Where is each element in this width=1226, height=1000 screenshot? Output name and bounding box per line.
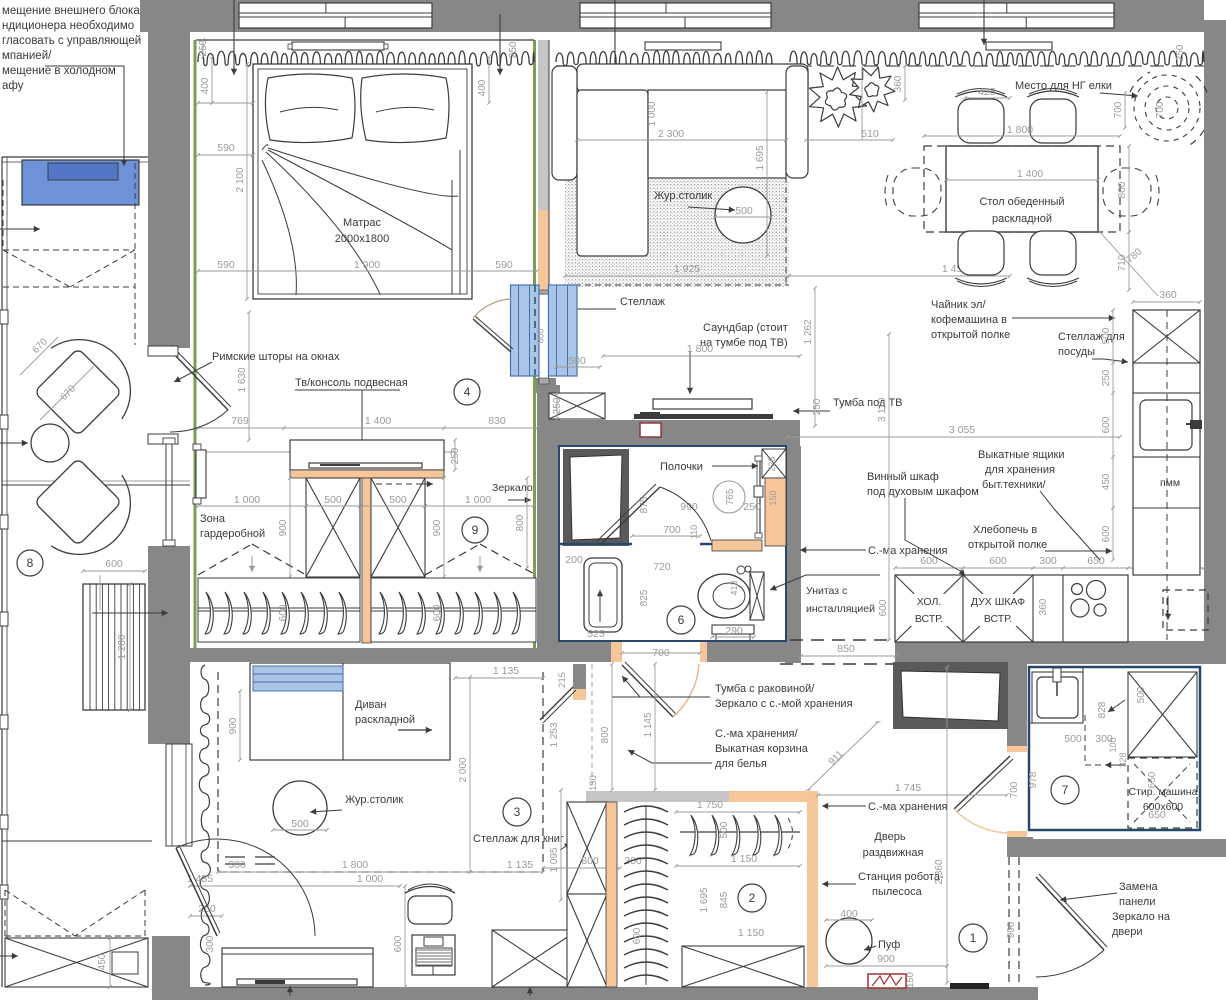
svg-text:Матрас: Матрас <box>343 217 381 229</box>
svg-text:235: 235 <box>767 456 777 471</box>
svg-text:1 745: 1 745 <box>895 782 921 794</box>
svg-text:130: 130 <box>588 775 599 791</box>
svg-text:290: 290 <box>725 625 743 637</box>
svg-text:590: 590 <box>217 259 235 271</box>
svg-text:500: 500 <box>291 818 309 830</box>
svg-text:ХОЛ.: ХОЛ. <box>917 596 942 608</box>
svg-text:Хлебопечь в: Хлебопечь в <box>973 524 1037 536</box>
svg-text:250: 250 <box>508 41 519 58</box>
svg-text:Замена: Замена <box>1119 881 1159 893</box>
svg-text:афу: афу <box>2 80 24 92</box>
svg-text:500: 500 <box>719 821 730 838</box>
svg-text:3: 3 <box>514 805 521 819</box>
svg-text:Пуф: Пуф <box>878 939 900 951</box>
svg-text:1 150: 1 150 <box>738 927 764 939</box>
svg-text:590: 590 <box>217 142 235 154</box>
svg-text:1 000: 1 000 <box>647 101 658 126</box>
svg-text:открытой полке: открытой полке <box>968 539 1047 551</box>
svg-text:1 695: 1 695 <box>755 145 766 170</box>
svg-text:360: 360 <box>1159 289 1177 301</box>
svg-text:ВСТР.: ВСТР. <box>915 613 943 625</box>
svg-text:мпанией/: мпанией/ <box>2 50 52 62</box>
svg-text:на тумбе под ТВ): на тумбе под ТВ) <box>700 337 788 349</box>
svg-text:1 145: 1 145 <box>643 712 654 737</box>
svg-text:600: 600 <box>432 604 443 621</box>
svg-text:раскладной: раскладной <box>992 213 1052 225</box>
svg-text:900: 900 <box>278 519 289 536</box>
svg-text:800: 800 <box>536 328 546 343</box>
svg-text:Диван: Диван <box>355 699 387 711</box>
svg-text:600: 600 <box>393 935 404 952</box>
svg-text:Стеллаж для: Стеллаж для <box>1058 331 1125 343</box>
svg-text:быт.техники/: быт.техники/ <box>982 479 1047 491</box>
svg-text:413: 413 <box>729 580 739 595</box>
svg-text:1 750: 1 750 <box>697 799 723 811</box>
svg-text:1 800: 1 800 <box>342 859 368 871</box>
svg-text:650: 650 <box>1147 771 1158 788</box>
svg-text:250: 250 <box>198 39 209 56</box>
svg-text:2 300: 2 300 <box>658 128 684 140</box>
svg-text:200: 200 <box>565 554 583 566</box>
svg-text:425: 425 <box>978 86 996 98</box>
svg-text:2 000: 2 000 <box>458 757 469 782</box>
svg-text:С.-ма хранения: С.-ма хранения <box>868 801 948 813</box>
svg-text:раскладной: раскладной <box>355 714 415 726</box>
svg-text:500: 500 <box>1101 327 1112 344</box>
svg-text:360: 360 <box>1038 598 1049 615</box>
svg-text:1 135: 1 135 <box>493 665 519 677</box>
svg-text:720: 720 <box>653 561 671 573</box>
svg-text:250: 250 <box>743 501 761 513</box>
svg-text:Стеллаж: Стеллаж <box>620 296 666 308</box>
svg-text:раздвижная: раздвижная <box>863 847 924 859</box>
svg-text:1 200: 1 200 <box>117 634 128 659</box>
svg-text:1 695: 1 695 <box>699 887 710 912</box>
svg-text:1 135: 1 135 <box>507 859 533 871</box>
svg-text:панели: панели <box>1119 896 1155 908</box>
svg-text:2000х1800: 2000х1800 <box>335 233 389 245</box>
svg-text:800: 800 <box>515 514 526 531</box>
svg-text:1 925: 1 925 <box>674 263 700 275</box>
svg-text:900: 900 <box>877 953 895 965</box>
svg-text:700: 700 <box>1113 101 1124 118</box>
svg-text:650: 650 <box>1148 809 1166 821</box>
svg-text:Зеркало на: Зеркало на <box>1112 911 1171 923</box>
svg-text:978: 978 <box>1028 771 1039 788</box>
svg-text:600: 600 <box>989 555 1007 567</box>
svg-text:650: 650 <box>1087 555 1105 567</box>
svg-text:590: 590 <box>495 259 513 271</box>
svg-text:400: 400 <box>200 77 211 94</box>
svg-text:250: 250 <box>1175 44 1186 61</box>
svg-text:500: 500 <box>1064 733 1082 745</box>
svg-text:Римские шторы на окнах: Римские шторы на окнах <box>212 351 340 363</box>
svg-text:для хранения: для хранения <box>985 464 1055 476</box>
svg-text:Дверь: Дверь <box>874 831 905 843</box>
svg-text:6: 6 <box>678 613 685 627</box>
svg-text:800: 800 <box>600 726 611 743</box>
svg-text:500: 500 <box>324 494 342 506</box>
svg-text:300: 300 <box>1039 555 1057 567</box>
svg-text:открытой полке: открытой полке <box>931 329 1010 341</box>
svg-text:Саундбар (стоит: Саундбар (стоит <box>703 322 788 334</box>
svg-text:гардеробной: гардеробной <box>200 528 265 540</box>
svg-text:1: 1 <box>970 931 977 945</box>
svg-text:250: 250 <box>1101 369 1112 386</box>
svg-text:1 800: 1 800 <box>687 343 713 355</box>
svg-text:Унитаз с: Унитаз с <box>806 585 847 597</box>
svg-text:215: 215 <box>557 672 568 688</box>
svg-text:600: 600 <box>1101 525 1112 542</box>
svg-text:1 253: 1 253 <box>549 722 560 747</box>
svg-text:600: 600 <box>878 599 889 616</box>
svg-text:Выкатная корзина: Выкатная корзина <box>715 743 809 755</box>
svg-text:ндиционера необходимо: ндиционера необходимо <box>2 20 134 32</box>
svg-text:Тумба под ТВ: Тумба под ТВ <box>833 397 903 409</box>
svg-text:мещение внешнего блока: мещение внешнего блока <box>2 5 140 17</box>
svg-text:300: 300 <box>205 935 216 952</box>
svg-text:900: 900 <box>432 519 443 536</box>
svg-text:769: 769 <box>231 415 249 427</box>
svg-text:900: 900 <box>228 717 239 734</box>
svg-text:1 800: 1 800 <box>1007 124 1033 136</box>
svg-text:Стол обеденный: Стол обеденный <box>979 196 1064 208</box>
svg-text:1 150: 1 150 <box>731 853 757 865</box>
svg-text:600: 600 <box>1101 416 1112 433</box>
svg-text:990: 990 <box>1006 921 1017 938</box>
svg-text:Выкатные ящики: Выкатные ящики <box>978 449 1064 461</box>
svg-text:600: 600 <box>105 558 123 570</box>
svg-text:500: 500 <box>1136 686 1147 703</box>
svg-text:мещение в холодном: мещение в холодном <box>2 65 116 77</box>
svg-text:Тумба с раковиной/: Тумба с раковиной/ <box>715 683 815 695</box>
svg-text:765: 765 <box>725 488 736 505</box>
svg-text:Зона: Зона <box>200 513 226 525</box>
svg-text:4: 4 <box>464 385 471 399</box>
svg-text:150: 150 <box>768 490 778 505</box>
svg-text:Чайник эл/: Чайник эл/ <box>931 299 986 311</box>
svg-text:Полочки: Полочки <box>660 461 703 473</box>
svg-text:510: 510 <box>861 128 879 140</box>
svg-text:525: 525 <box>587 628 605 640</box>
svg-text:850: 850 <box>837 643 855 655</box>
svg-text:3 055: 3 055 <box>949 424 975 436</box>
svg-text:500: 500 <box>735 205 753 217</box>
svg-text:посуды: посуды <box>1058 346 1095 358</box>
svg-text:1 000: 1 000 <box>357 873 383 885</box>
svg-text:825: 825 <box>639 589 650 606</box>
svg-text:1 095: 1 095 <box>549 847 560 872</box>
svg-text:2: 2 <box>749 891 756 905</box>
svg-text:1 630: 1 630 <box>237 367 248 392</box>
svg-text:700: 700 <box>1009 781 1020 798</box>
svg-text:гласовать с управляющей: гласовать с управляющей <box>2 35 141 47</box>
svg-text:7: 7 <box>1062 783 1069 797</box>
svg-text:360: 360 <box>893 75 904 92</box>
svg-text:1 000: 1 000 <box>465 494 491 506</box>
svg-text:пылесоса: пылесоса <box>872 886 923 898</box>
svg-text:500: 500 <box>568 355 586 367</box>
svg-text:845: 845 <box>719 891 730 908</box>
svg-text:3 110: 3 110 <box>877 397 888 422</box>
svg-text:Место для НГ елки: Место для НГ елки <box>1015 80 1112 92</box>
svg-text:400: 400 <box>477 79 488 96</box>
svg-text:800: 800 <box>581 855 599 867</box>
svg-text:ВСТР.: ВСТР. <box>984 613 1012 625</box>
svg-text:9: 9 <box>472 523 479 537</box>
svg-text:2 100: 2 100 <box>235 167 246 192</box>
svg-text:Жур.столик: Жур.столик <box>654 190 712 202</box>
svg-text:300: 300 <box>1095 733 1113 745</box>
svg-text:250: 250 <box>812 398 823 415</box>
svg-text:1 900: 1 900 <box>354 259 380 271</box>
svg-text:250: 250 <box>552 397 563 414</box>
svg-text:двери: двери <box>1112 926 1143 938</box>
svg-text:С.-ма хранения/: С.-ма хранения/ <box>715 728 799 740</box>
svg-text:для белья: для белья <box>715 758 767 770</box>
svg-text:500: 500 <box>389 494 407 506</box>
svg-text:Жур.столик: Жур.столик <box>345 794 403 806</box>
svg-text:800: 800 <box>1117 181 1128 198</box>
svg-text:1 000: 1 000 <box>234 494 260 506</box>
svg-text:Станция робота-: Станция робота- <box>858 871 944 883</box>
svg-text:450: 450 <box>1101 473 1112 490</box>
svg-text:250: 250 <box>450 447 461 464</box>
svg-text:Стеллаж для книг: Стеллаж для книг <box>473 833 564 845</box>
svg-text:1 262: 1 262 <box>803 319 814 344</box>
svg-text:1 400: 1 400 <box>365 415 391 427</box>
svg-text:под духовым шкафом: под духовым шкафом <box>867 486 979 498</box>
svg-text:инсталляцией: инсталляцией <box>806 603 875 615</box>
svg-text:300: 300 <box>624 855 642 867</box>
svg-text:1 400: 1 400 <box>1017 168 1043 180</box>
svg-text:300: 300 <box>228 859 246 871</box>
svg-text:Зеркало с с.-мой хранения: Зеркало с с.-мой хранения <box>715 698 853 710</box>
svg-text:600: 600 <box>632 927 643 944</box>
svg-text:Тв/консоль подвесная: Тв/консоль подвесная <box>295 377 408 389</box>
svg-text:ДУХ ШКАФ: ДУХ ШКАФ <box>971 596 1025 608</box>
svg-text:700: 700 <box>663 524 681 536</box>
svg-text:828: 828 <box>1097 701 1108 718</box>
svg-text:110: 110 <box>689 525 699 539</box>
svg-text:Стир. машина: Стир. машина <box>1129 786 1198 798</box>
svg-text:кофемашина в: кофемашина в <box>931 314 1007 326</box>
svg-text:400: 400 <box>840 908 858 920</box>
svg-text:700: 700 <box>1155 101 1166 118</box>
svg-text:600: 600 <box>278 604 289 621</box>
svg-text:830: 830 <box>488 415 506 427</box>
svg-text:пмм: пмм <box>1160 477 1180 489</box>
svg-text:8: 8 <box>27 556 34 570</box>
svg-text:450: 450 <box>97 953 108 970</box>
svg-text:Винный шкаф: Винный шкаф <box>867 471 939 483</box>
